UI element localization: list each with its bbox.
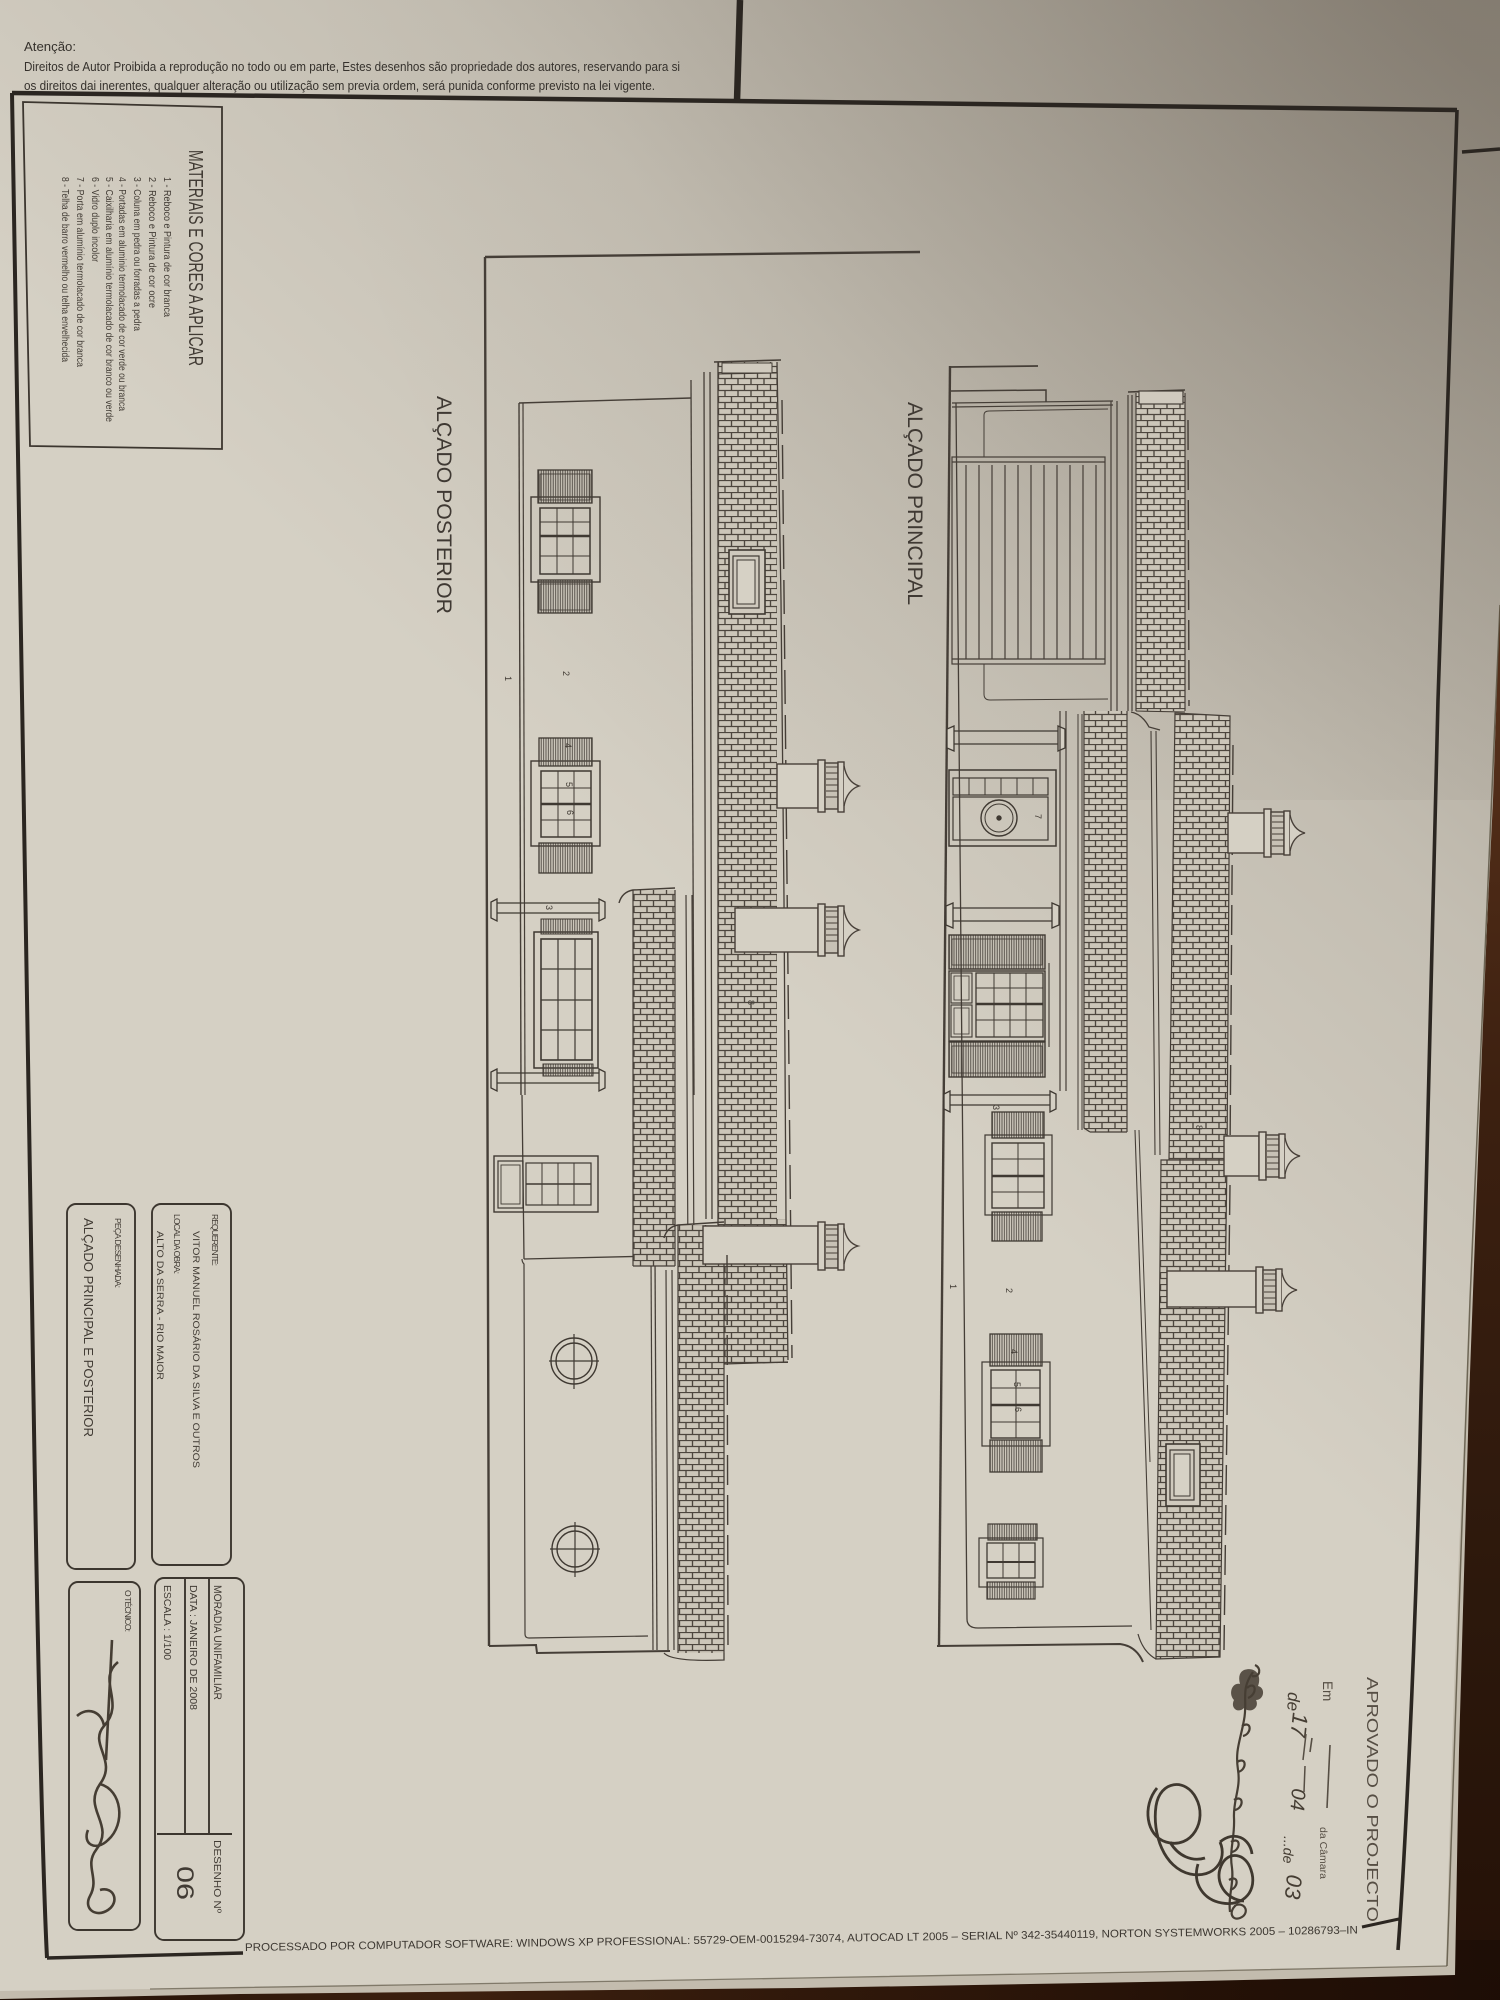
- svg-text:2: 2: [1004, 1288, 1014, 1293]
- svg-text:MATERIAIS E CORES A APLICAR: MATERIAIS E CORES A APLICAR: [184, 150, 206, 366]
- svg-text:5: 5: [564, 782, 574, 787]
- svg-text:3: 3: [544, 905, 554, 910]
- svg-text:3: 3: [991, 1105, 1001, 1110]
- svg-text:APROVADO O PROJECTO: APROVADO O PROJECTO: [1363, 1677, 1380, 1922]
- svg-text:DESENHO Nº: DESENHO Nº: [211, 1840, 222, 1913]
- svg-text:5: 5: [1012, 1382, 1022, 1387]
- svg-text:Atenção:: Atenção:: [24, 39, 76, 54]
- svg-text:LOCAL DA OBRA:: LOCAL DA OBRA:: [172, 1214, 182, 1274]
- svg-text:3 - Coluna em pedra ou forrada: 3 - Coluna em pedra ou forradas a pedra: [131, 177, 142, 331]
- svg-text:da Câmara: da Câmara: [1317, 1827, 1329, 1879]
- svg-text:06: 06: [171, 1866, 198, 1900]
- svg-text:ALÇADO PRINCIPAL: ALÇADO PRINCIPAL: [903, 402, 926, 605]
- svg-text:REQUERENTE:: REQUERENTE:: [210, 1214, 220, 1266]
- svg-text:2: 2: [561, 671, 571, 676]
- svg-text:8: 8: [1194, 1125, 1204, 1130]
- svg-text:ALTO DA SERRA - RIO MAIOR: ALTO DA SERRA - RIO MAIOR: [154, 1231, 165, 1380]
- svg-text:03: 03: [1280, 1874, 1307, 1901]
- svg-text:...de: ...de: [1280, 1836, 1297, 1864]
- svg-text:6 - Vidro duplo incolor: 6 - Vidro duplo incolor: [89, 177, 100, 263]
- svg-text:PEÇA DESENHADA:: PEÇA DESENHADA:: [113, 1218, 123, 1288]
- svg-text:de: de: [1283, 1692, 1303, 1712]
- svg-text:1 - Reboco e Pintura de cor br: 1 - Reboco e Pintura de cor branca: [161, 177, 172, 317]
- svg-text:Em: Em: [1320, 1681, 1335, 1701]
- svg-text:1: 1: [948, 1284, 958, 1289]
- svg-text:6: 6: [565, 810, 575, 815]
- svg-text:4 - Portadas em aluminio termo: 4 - Portadas em aluminio termolacado de …: [116, 177, 127, 411]
- svg-text:ALÇADO PRINCIPAL E POSTERIOR: ALÇADO PRINCIPAL E POSTERIOR: [81, 1218, 96, 1437]
- svg-text:MORADIA UNIFAMILIAR: MORADIA UNIFAMILIAR: [211, 1585, 223, 1700]
- svg-text:os direitos dai inerentes,: os direitos dai inerentes, qualquer alte…: [24, 78, 655, 93]
- svg-text:5 - Caixilharia em alumínio te: 5 - Caixilharia em alumínio termolacado …: [103, 177, 114, 422]
- svg-text:4: 4: [563, 743, 573, 748]
- svg-text:2 - Reboco e Pintura de cor oc: 2 - Reboco e Pintura de cor ocre: [146, 177, 157, 308]
- svg-text:ALÇADO POSTERIOR: ALÇADO POSTERIOR: [432, 396, 455, 614]
- svg-text:17: 17: [1285, 1711, 1313, 1739]
- svg-text:8 - Telha de barro vermelho ou: 8 - Telha de barro vermelho ou telha env…: [59, 177, 70, 362]
- svg-text:DATA : JANEIRO DE 2008: DATA : JANEIRO DE 2008: [187, 1585, 198, 1710]
- svg-text:4: 4: [1009, 1349, 1019, 1354]
- svg-text:O TÉCNICO:: O TÉCNICO:: [123, 1590, 133, 1632]
- svg-text:7 - Porta em alumínio termolac: 7 - Porta em alumínio termolacado de cor…: [74, 177, 85, 367]
- svg-text:8: 8: [746, 1000, 756, 1005]
- svg-text:6: 6: [1013, 1407, 1023, 1412]
- svg-text:Direitos de Autor Proibida: Direitos de Autor Proibida a reprodução …: [24, 59, 680, 74]
- svg-text:VITOR MANUEL ROSÁRIO DA SILVA: VITOR MANUEL ROSÁRIO DA SILVA E OUTROS: [190, 1231, 201, 1468]
- svg-text:04: 04: [1285, 1788, 1308, 1812]
- svg-text:1: 1: [503, 676, 513, 681]
- svg-text:7: 7: [1033, 814, 1043, 819]
- svg-text:ESCALA : 1/100: ESCALA : 1/100: [161, 1585, 172, 1660]
